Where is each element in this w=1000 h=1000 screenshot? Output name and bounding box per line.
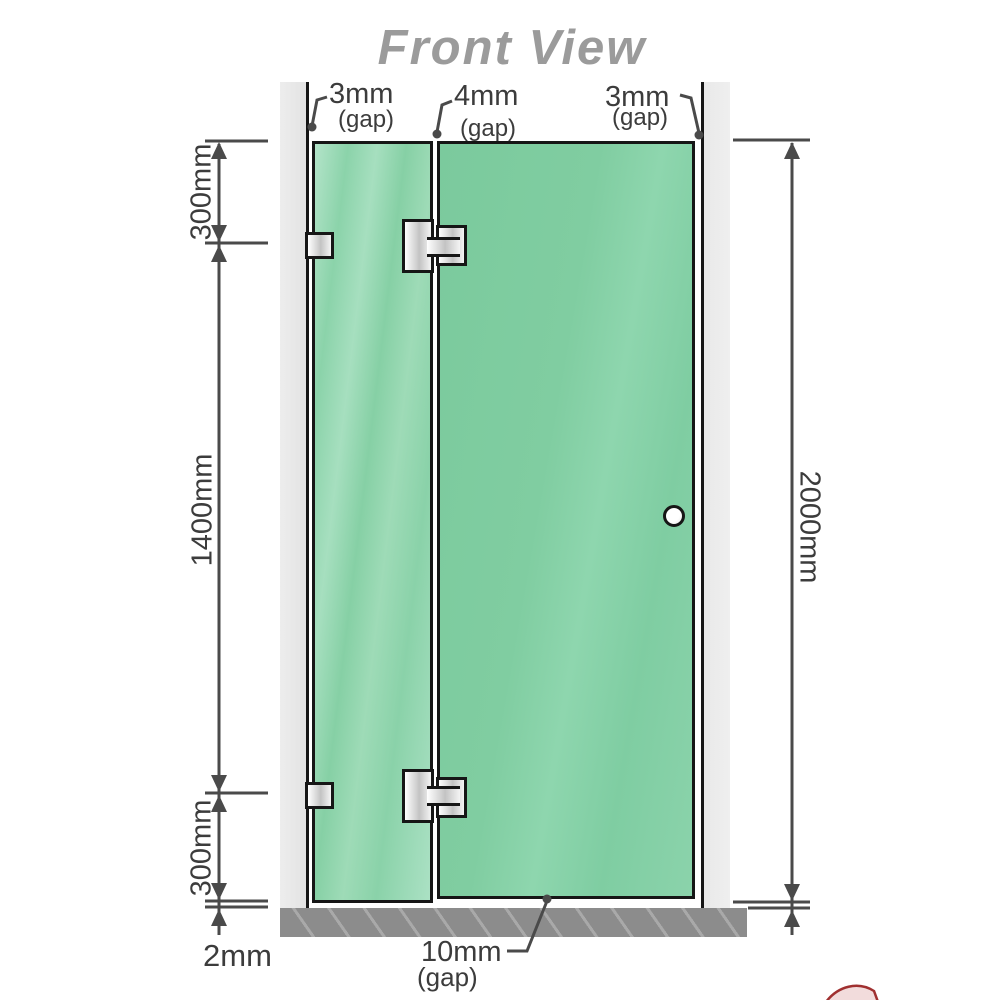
page-title: Front View xyxy=(378,20,647,76)
gap-label-middle-note: (gap) xyxy=(460,117,516,141)
gap-label-left-note: (gap) xyxy=(338,108,394,132)
gap-label-right-note: (gap) xyxy=(612,106,668,130)
glass-hinge-bottom-bridge xyxy=(427,786,460,806)
dim-floor-gap: 2mm xyxy=(203,940,272,971)
logo-fragment xyxy=(826,986,878,1000)
wall-bracket-bottom xyxy=(305,782,334,809)
door-glass-panel xyxy=(437,141,695,899)
dim-left-upper: 300mm xyxy=(188,144,217,241)
wall-bracket-top xyxy=(305,232,334,259)
dim-left-middle: 1400mm xyxy=(189,454,218,567)
gap-label-middle: 4mm xyxy=(454,82,518,111)
door-knob xyxy=(663,505,685,527)
dim-left-lower: 300mm xyxy=(188,800,217,897)
glass-hinge-top-bridge xyxy=(427,237,460,257)
gap-label-left: 3mm xyxy=(329,80,393,109)
dim-right-total: 2000mm xyxy=(795,471,824,584)
floor-base xyxy=(280,908,747,937)
dim-bottom-gap-note: (gap) xyxy=(417,964,478,990)
right-wall-channel xyxy=(701,82,730,908)
front-view-diagram: Front View xyxy=(0,0,1000,1000)
